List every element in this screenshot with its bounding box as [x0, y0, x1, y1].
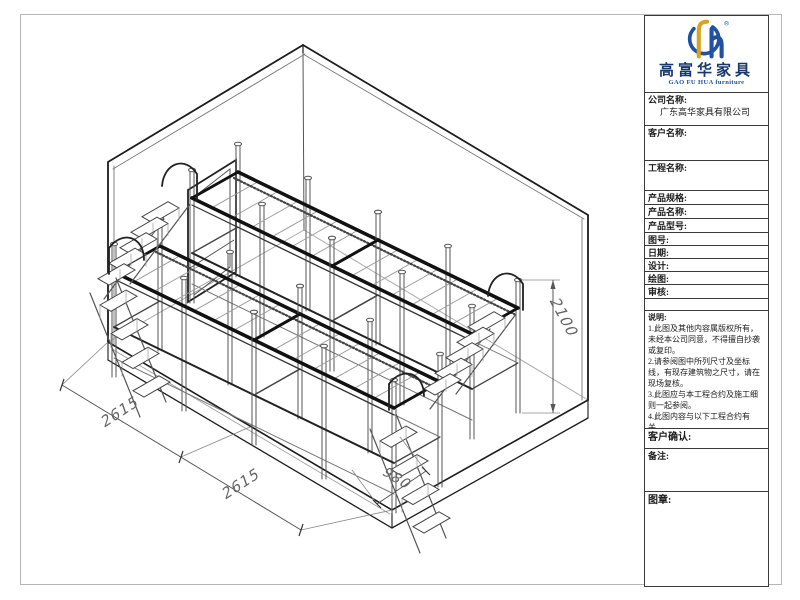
brand-name-en: GAO FU HUA furniture [648, 79, 765, 87]
field-customer: 客户名称: [645, 126, 768, 161]
field-spec: 产品规格: [645, 191, 768, 205]
field-project: 工程名称: [645, 161, 768, 191]
model-label: 产品型号: [648, 221, 687, 231]
dimension-depth [60, 342, 392, 536]
loft-bed-back-left [189, 142, 382, 371]
field-company: 公司名称: 广东高华家具有限公司 [645, 93, 768, 126]
design-label: 设计: [648, 261, 669, 271]
logo-cell: ® 高富华家具 GAO FU HUA furniture [645, 16, 768, 93]
spec-label: 产品规格: [648, 193, 687, 203]
field-stamp: 图章: [645, 492, 768, 586]
company-value: 广东高华家具有限公司 [648, 106, 765, 118]
dim-text-2615-b: 2615 [220, 464, 261, 504]
field-drawing-no: 图号: [645, 233, 768, 246]
stamp-label: 图章: [648, 495, 671, 506]
note-4: 4.此图内容与以下工程合约有关。 [648, 411, 765, 429]
field-confirm: 客户确认: [645, 429, 768, 449]
note-3: 3.此图应与本工程合约及施工细则一起参阅。 [648, 389, 765, 411]
drawing-sheet: 2615 2615 980 2100 ® 高富华家具 [0, 0, 800, 600]
brand-name-cn: 高富华家具 [648, 63, 765, 79]
note-2: 2.请参阅图中所列尺寸及坐标线，有现存建筑物之尺寸，请在现场复核。 [648, 356, 765, 389]
draft-label: 绘图: [648, 274, 669, 284]
product-name-label: 产品名称: [648, 207, 687, 217]
date-label: 日期: [648, 248, 669, 258]
note-1: 1.此图及其他内容属版权所有，未经本公司同意，不得擅自抄袭或复印。 [648, 323, 765, 356]
title-block: ® 高富华家具 GAO FU HUA furniture 公司名称: 广东高华家… [644, 15, 769, 587]
drawing-no-label: 图号: [648, 235, 669, 245]
audit-label: 审核: [648, 287, 669, 297]
dim-text-2615-a: 2615 [99, 392, 140, 432]
field-audit: 审核: [645, 285, 768, 299]
dim-text-2100: 2100 [545, 297, 583, 339]
company-label: 公司名称: [648, 95, 687, 105]
field-design: 设计: [645, 259, 768, 272]
remark-label: 备注: [648, 451, 669, 461]
field-blank [645, 299, 768, 311]
field-model: 产品型号: [645, 219, 768, 233]
confirm-label: 客户确认: [648, 432, 691, 443]
field-notes: 说明: 1.此图及其他内容属版权所有，未经本公司同意，不得擅自抄袭或复印。 2.… [645, 311, 768, 429]
field-draft: 绘图: [645, 272, 768, 285]
field-remark: 备注: [645, 449, 768, 492]
customer-label: 客户名称: [648, 128, 687, 138]
gfh-logo-icon: ® [684, 18, 730, 60]
project-label: 工程名称: [648, 163, 687, 173]
notes-label: 说明: [648, 313, 667, 322]
field-date: 日期: [645, 246, 768, 259]
field-product-name: 产品名称: [645, 205, 768, 219]
registered-mark: ® [723, 19, 729, 27]
